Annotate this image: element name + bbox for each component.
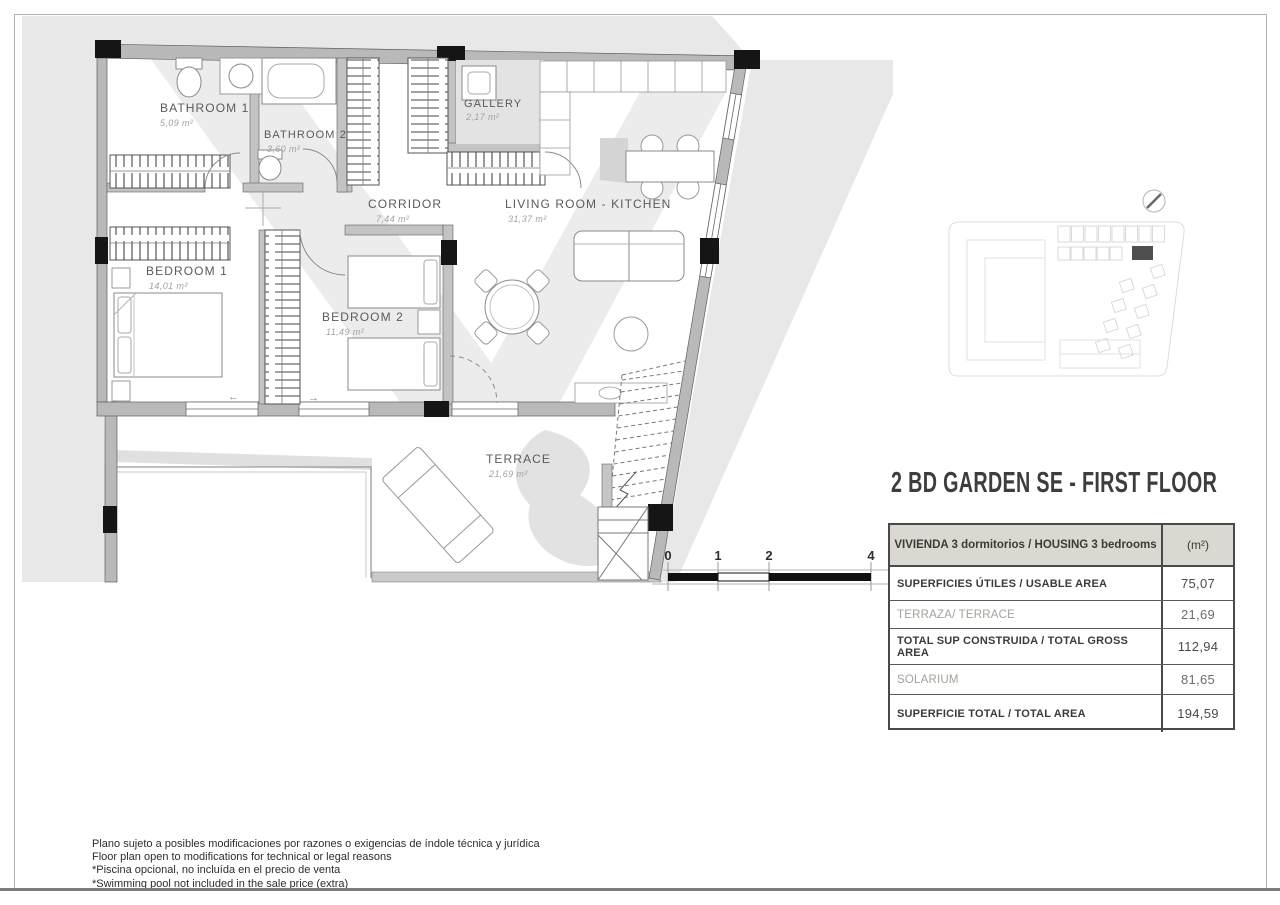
page-frame xyxy=(14,14,1267,890)
floor-plan-sheet: BATHROOM 1 5,09 m² BATHROOM 2 3,60 m² GA… xyxy=(0,0,1280,905)
page-bottom-edge xyxy=(0,888,1280,891)
